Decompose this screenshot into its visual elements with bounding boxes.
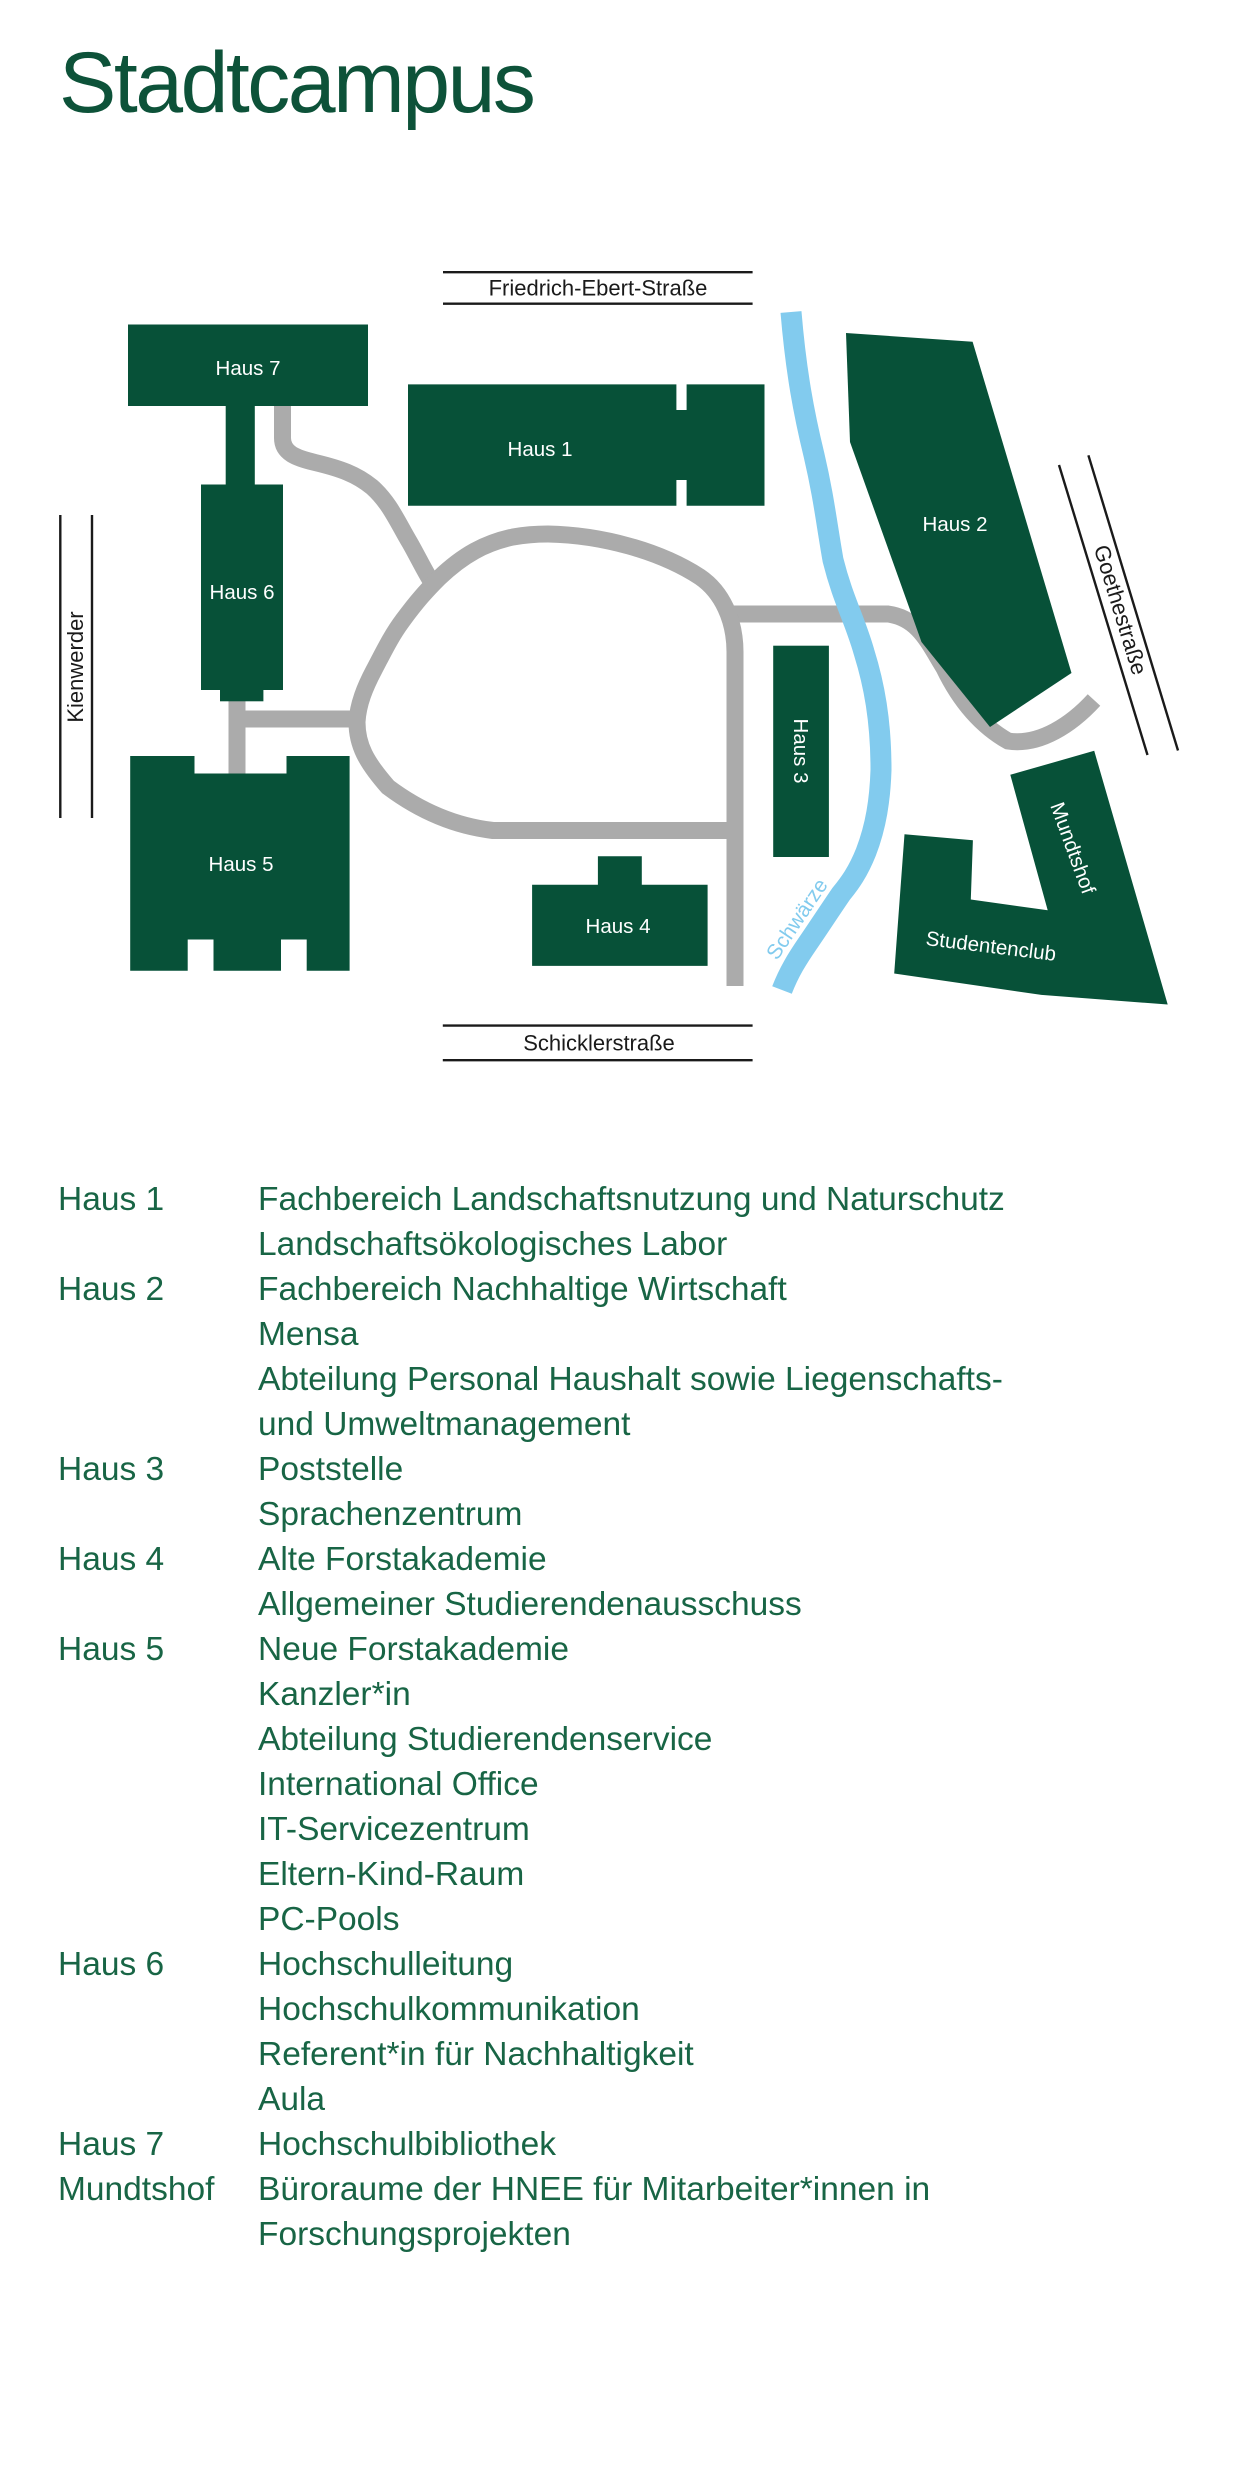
svg-text:Haus 2: Haus 2 bbox=[923, 513, 988, 536]
svg-text:Haus 1: Haus 1 bbox=[508, 438, 573, 461]
svg-text:Haus 4: Haus 4 bbox=[586, 915, 651, 938]
svg-text:Kienwerder: Kienwerder bbox=[63, 611, 88, 722]
svg-text:Friedrich-Ebert-Straße: Friedrich-Ebert-Straße bbox=[489, 276, 708, 301]
svg-text:Haus 7: Haus 7 bbox=[216, 357, 281, 380]
svg-text:Schicklerstraße: Schicklerstraße bbox=[523, 1031, 675, 1056]
svg-text:Haus 5: Haus 5 bbox=[209, 853, 274, 876]
svg-text:Haus 6: Haus 6 bbox=[210, 581, 275, 604]
svg-text:Haus 3: Haus 3 bbox=[789, 719, 812, 784]
